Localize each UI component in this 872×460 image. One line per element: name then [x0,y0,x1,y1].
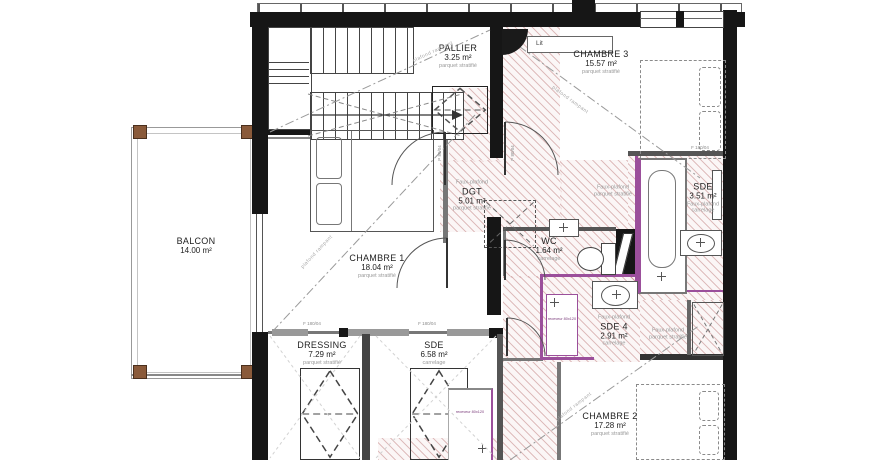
closet-cross-icon [301,369,359,459]
wall-pallier-chambre3 [490,27,503,158]
balcony-edge [131,374,257,376]
window-mullion [676,11,684,27]
room-label-sde4: Faux-plafond SDE 4 2.91 m² carrelage [598,315,630,348]
room-area: 1.64 m² [535,246,562,255]
window-tag: F 180/04 [303,322,321,327]
room-name: SDE [687,182,719,192]
room-ceiling: Faux-plafond [598,315,630,322]
ceiling-note-line: Faux-plafond [594,184,632,191]
tiled-wall-line [540,274,640,277]
pillow [699,391,719,421]
room-label-chambre1: CHAMBRE 1 18.04 m² parquet stratifié [349,253,404,279]
window-bar [272,329,308,336]
room-name: CHAMBRE 1 [349,253,404,263]
room-material: parquet stratifié [453,206,491,213]
drain-icon [696,238,705,247]
bed-reservation-label: Lit [536,40,543,47]
tiled-wall-line [540,277,543,360]
room-area: 3.25 m² [439,53,477,62]
window-bar [347,329,409,336]
ceiling-note-line: parquet stratifié [594,191,632,198]
hatch-region [503,362,558,460]
room-area: 14.00 m² [177,247,216,256]
wall-sde-corridor [497,334,503,460]
room-name: BALCON [177,236,216,246]
pillow [699,67,721,107]
drain-icon [657,272,666,281]
room-area: 5.01 m² [453,197,491,206]
shower-tray-sde4: receveur 80x120 [546,294,578,356]
room-name: CHAMBRE 3 [573,49,628,59]
wall-closet [687,300,691,355]
drain-icon [612,290,621,299]
washbasin-sde [680,230,722,256]
slider-line [256,214,257,332]
wall-chambre1-corridor [443,126,448,243]
ceiling-note: Faux-plafond parquet stratifié [649,327,687,340]
shower-label: receveur 80x120 [547,317,577,322]
room-label-chambre2: CHAMBRE 2 17.28 m² parquet stratifié [582,411,637,437]
pillow [316,183,342,225]
room-material: parquet stratifié [582,430,637,437]
closet-right [692,302,724,356]
blanket-line [351,131,352,231]
closet-cross-icon [433,87,487,133]
room-name: SDE 4 [598,321,630,331]
washbasin-sde4 [592,281,638,309]
wood-post [133,125,147,139]
bed-chambre1 [310,130,434,232]
balcony-slider [251,214,268,332]
room-label-wc: WC 1.64 m² carrelage [535,236,562,262]
room-name: SDE [420,340,447,350]
room-area: 17.28 m² [582,421,637,430]
hand-basin-wc [549,219,579,237]
room-ceiling: Faux-plafond [687,201,719,208]
slider-line [262,214,263,332]
bathtub [638,158,687,294]
ceiling-note-line: Faux-plafond [649,327,687,334]
closet-cross-icon [485,201,535,247]
wood-post [133,365,147,379]
room-area: 7.29 m² [297,350,346,359]
shower-label: receveur 80x120 [449,410,491,415]
door-tag: P 80/04 [511,145,516,160]
window-tag: F 180/04 [418,322,436,327]
door-tag: P 80/04 [438,145,443,160]
room-material: carrelage [420,359,447,366]
wall-pier [339,328,348,337]
pillow [699,425,719,455]
room-material: carrelage [535,255,562,262]
bed-chambre2 [636,384,725,460]
room-name: DRESSING [297,340,346,350]
room-material: parquet stratifié [349,272,404,279]
room-ceiling: Faux-plafond [453,180,491,187]
room-area: 2.91 m² [598,332,630,341]
slope-annotation: plafond rampant [300,234,334,270]
room-label-dgt: Faux-plafond DGT 5.01 m² parquet stratif… [453,180,491,213]
closet-pallier [432,86,488,134]
room-label-balcon: BALCON 14.00 m² [177,236,216,256]
bed-chambre3 [640,60,726,159]
closet-cross-icon [693,303,723,355]
window-tag: F 180/04 [691,146,709,151]
room-label-sde-bottom: SDE 6.58 m² carrelage [420,340,447,366]
room-material: carrelage [687,208,719,215]
wardrobe-dressing [300,368,360,460]
room-area: 6.58 m² [420,350,447,359]
toilet-bowl [577,247,604,271]
wall-dressing-sde [362,334,370,460]
room-name: WC [535,236,562,246]
pillow [316,137,342,179]
bathtub-basin [648,170,676,268]
room-label-sde: SDE 3.51 m² Faux-plafond carrelage [687,182,719,215]
drain-icon [559,223,568,232]
drain-icon [550,298,559,307]
room-material: parquet stratifié [573,68,628,75]
room-label-chambre3: CHAMBRE 3 15.57 m² parquet stratifié [573,49,628,75]
tiled-wall-line [540,357,594,360]
room-material: parquet stratifié [297,359,346,366]
shower-tray-sde: receveur 80x120 [448,388,493,460]
drain-icon [478,444,487,453]
room-material: carrelage [598,341,630,348]
window-bar [447,329,489,336]
room-name: CHAMBRE 2 [582,411,637,421]
ceiling-note: Faux-plafond parquet stratifié [594,184,632,197]
stair-upper-flight [310,27,414,74]
room-area: 18.04 m² [349,263,404,272]
wall-sde4-bottom [503,358,543,361]
ceiling-note-line: parquet stratifié [649,334,687,341]
stair-mini-flight [269,58,309,84]
closet-dgt [484,200,536,248]
room-area: 3.51 m² [687,192,719,201]
room-area: 15.57 m² [573,59,628,68]
room-label-dressing: DRESSING 7.29 m² parquet stratifié [297,340,346,366]
wall-stub [572,0,595,13]
wall-corridor-chambre2 [557,362,561,460]
room-material: parquet stratifié [439,62,477,69]
room-name: DGT [453,186,491,196]
floor-plan: receveur 80x120 receveur 80x120 Lit PALL… [0,0,872,460]
